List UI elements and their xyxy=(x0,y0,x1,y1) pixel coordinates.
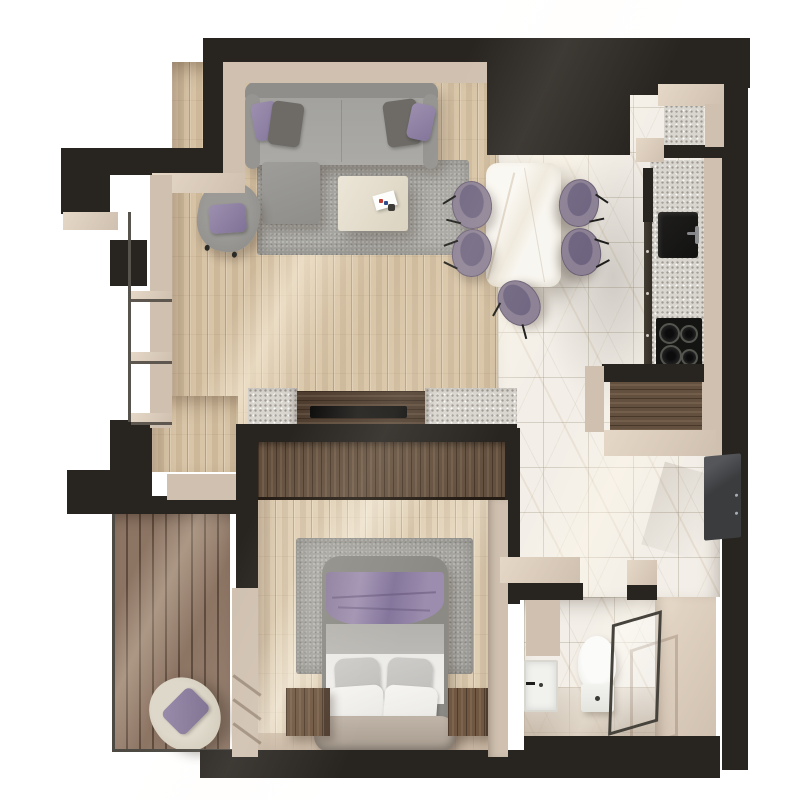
cabinet-handle xyxy=(646,334,649,337)
magazine-print-red xyxy=(379,199,383,203)
face-bedroom-west xyxy=(232,588,258,757)
wall-living-bedroom-divider xyxy=(236,424,517,442)
nightstand-right xyxy=(448,688,492,736)
door-hinge xyxy=(735,512,738,515)
wall-bathroom-jamb-right xyxy=(627,583,657,600)
wall-top-left-vertical xyxy=(203,38,225,152)
bathroom-washbasin xyxy=(524,660,558,712)
wall-kitchen-top-block xyxy=(487,62,630,155)
marble-vein xyxy=(487,172,516,279)
face-balcony-north xyxy=(167,474,236,500)
door-hinge xyxy=(735,494,738,497)
window-shelf xyxy=(131,413,172,425)
bed-headboard xyxy=(314,716,456,752)
double-bed xyxy=(322,556,448,752)
face-top-left-inner xyxy=(223,62,245,178)
railing-shadow-stripe xyxy=(232,674,261,696)
cooktop xyxy=(656,318,702,370)
basin-faucet xyxy=(526,682,535,685)
wall-bottom-right xyxy=(524,736,720,778)
window-shelf xyxy=(131,352,172,364)
face-niche-wedge xyxy=(636,138,664,162)
face-bathroom-north xyxy=(500,557,580,583)
tv xyxy=(310,406,407,418)
wardrobe xyxy=(258,442,507,500)
face-entry-closet-bottom xyxy=(604,430,716,456)
railing-shadow-stripe xyxy=(232,698,261,720)
window-glass-line xyxy=(128,212,131,422)
armchair-cushion-purple xyxy=(208,203,247,235)
wall-bathroom-jamb-left xyxy=(510,583,583,600)
sectional-sofa xyxy=(245,82,438,169)
faucet-spout xyxy=(687,232,696,235)
wall-left-pier-top xyxy=(61,148,110,214)
cooktop-burner xyxy=(659,323,680,344)
chaise-ottoman xyxy=(262,162,320,224)
flush-button xyxy=(595,696,600,701)
cabinet-handle xyxy=(646,292,649,295)
dining-table xyxy=(486,163,561,287)
kitchen-sink xyxy=(658,212,698,258)
wall-bedroom-west xyxy=(236,424,258,590)
glass-railing-left xyxy=(112,512,115,752)
sofa-seam xyxy=(341,100,342,162)
face-entry-pillar xyxy=(585,366,604,432)
armchair-foot xyxy=(231,251,237,258)
wall-right xyxy=(722,80,748,770)
nightstand-left xyxy=(286,688,330,736)
bed-blanket-purple xyxy=(326,572,444,626)
kitchen-counter-niche xyxy=(664,104,704,145)
tv-granite-block-left xyxy=(248,388,297,428)
kitchen-cabinet-front xyxy=(644,222,652,372)
sofa-pillow-dark-left xyxy=(267,100,305,148)
face-bedroom-east xyxy=(488,500,508,757)
wall-counter-notch xyxy=(643,168,653,222)
decor-object xyxy=(388,204,395,211)
basin-drain xyxy=(539,683,543,687)
face-kitchen-east-strip xyxy=(704,158,722,456)
face-niche-right xyxy=(705,104,724,147)
face-bathroom-door-right xyxy=(627,560,657,585)
shower-glass-screen xyxy=(608,610,662,736)
window-shelf xyxy=(131,291,172,302)
marble-vein xyxy=(524,168,545,282)
armchair-foot xyxy=(204,244,210,251)
cabinet-handle xyxy=(646,250,649,253)
railing-shadow-stripe xyxy=(232,722,261,744)
cooktop-burner xyxy=(680,325,698,343)
entry-door xyxy=(704,453,741,540)
entry-closet xyxy=(610,380,702,430)
wall-top xyxy=(203,38,663,62)
floor-plan-render xyxy=(0,0,800,800)
bed-sheet-gray xyxy=(326,624,444,658)
face-top-inner xyxy=(223,62,487,83)
face-bathroom-west-block xyxy=(526,600,560,656)
face-pier-wedge xyxy=(63,212,118,230)
face-niche-frame-top xyxy=(658,84,724,106)
kitchen-faucet xyxy=(695,226,699,244)
coffee-table xyxy=(338,176,408,231)
